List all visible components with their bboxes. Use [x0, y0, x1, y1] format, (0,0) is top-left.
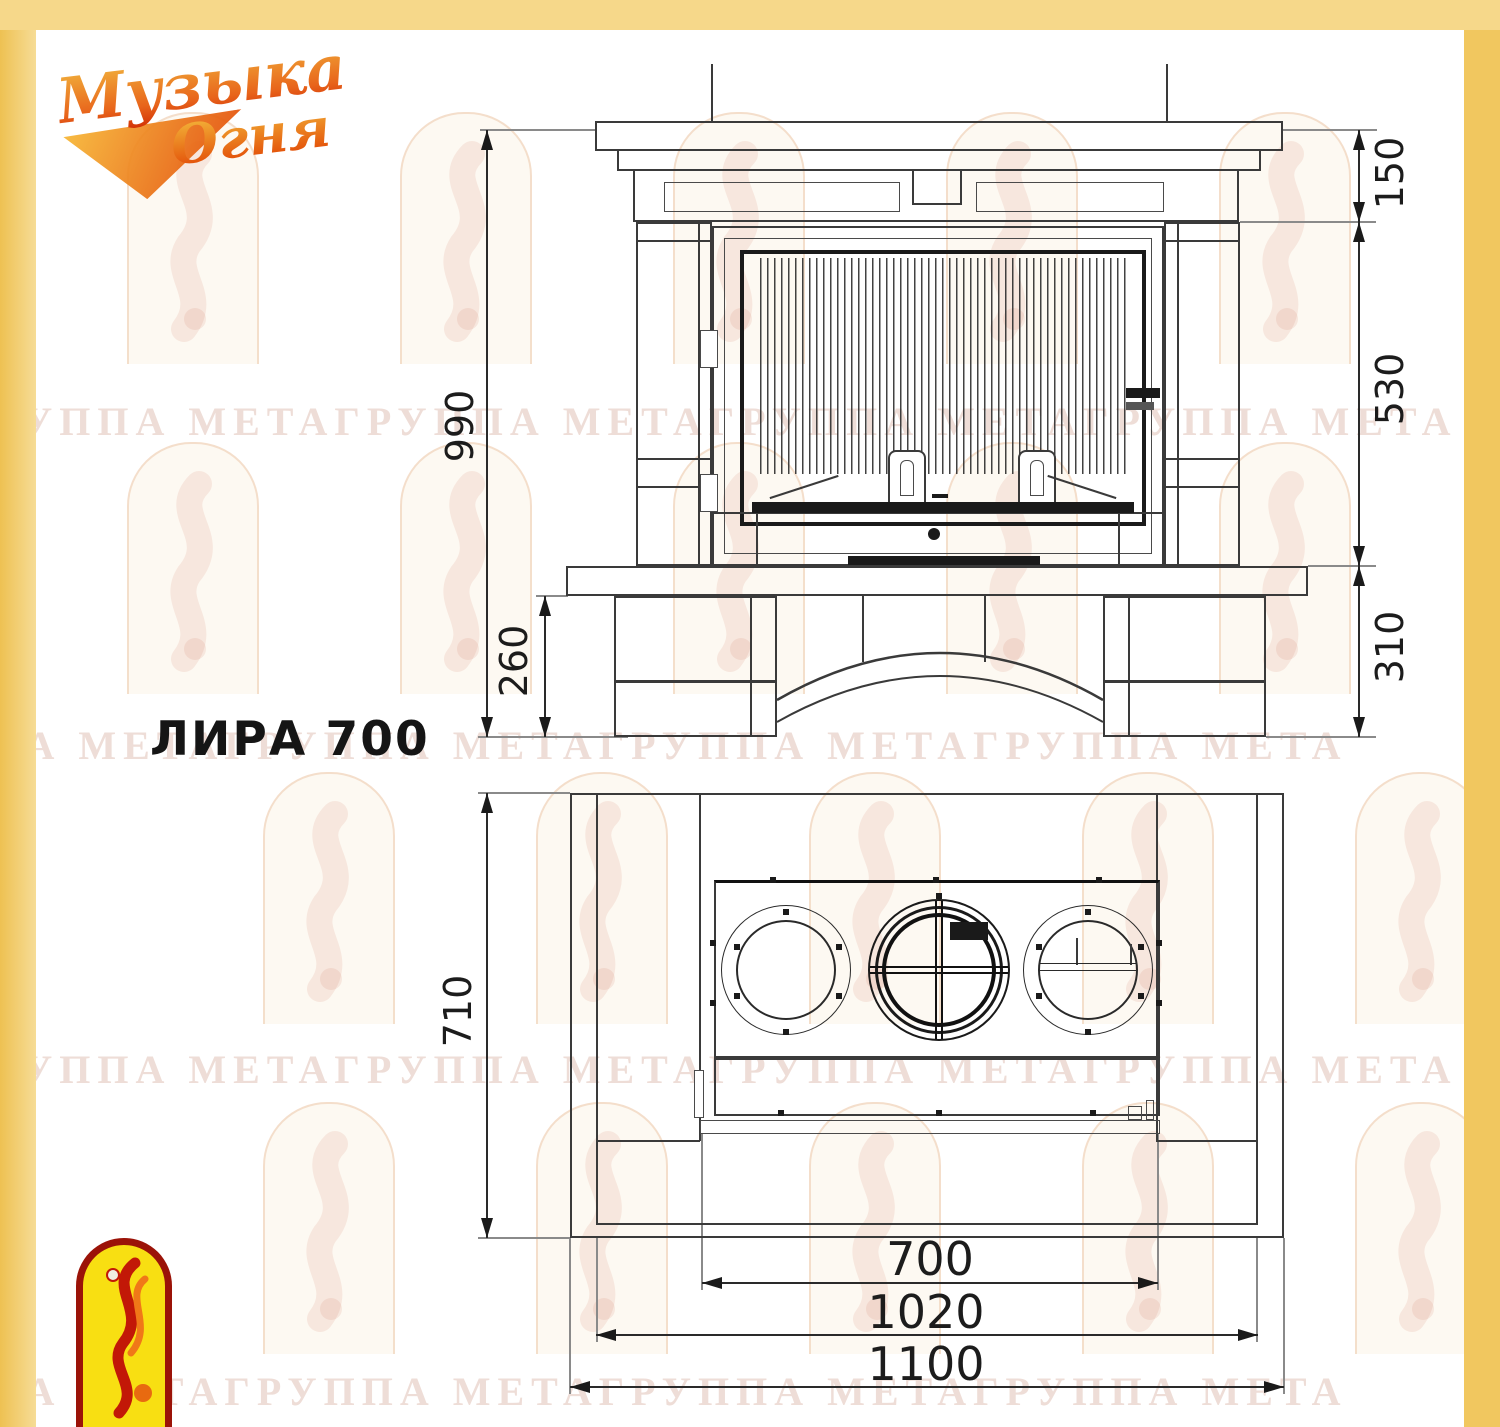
dim-line-990 — [486, 130, 488, 737]
[object — [457, 308, 479, 330]
line — [614, 680, 777, 683]
line — [1164, 486, 1240, 488]
bolt-mark — [1090, 1110, 1096, 1116]
mantel-chamfer — [617, 149, 1261, 171]
dim-label-1100: 1100 — [826, 1339, 1026, 1389]
bolt-mark — [778, 1110, 784, 1116]
watermark-arch-icon — [263, 1102, 395, 1354]
arrow-up — [481, 793, 493, 813]
arrow-down — [1353, 546, 1365, 566]
dim-label-710: 710 — [434, 951, 482, 1071]
[object — [107, 1269, 119, 1281]
floor-dash — [932, 494, 948, 498]
dim-line-710 — [486, 793, 488, 1238]
bolt-mark — [1085, 909, 1091, 915]
dim-label-530: 530 — [1366, 329, 1414, 449]
[object — [134, 1384, 152, 1402]
watermark-arch-icon — [400, 112, 532, 364]
[object — [319, 814, 335, 989]
hinge-bottom — [700, 474, 718, 512]
[object — [184, 308, 206, 330]
watermark-text: ГРУППА МЕТАГРУППА МЕТАГРУППА МЕТАГРУППА … — [0, 1368, 1347, 1415]
hinge-top — [700, 330, 718, 368]
[object — [1412, 1298, 1434, 1320]
ext-line — [478, 736, 628, 738]
bolt-mark — [710, 1000, 716, 1006]
column-left — [636, 222, 712, 566]
[object — [456, 154, 472, 329]
arrow-left — [570, 1381, 590, 1393]
hearth-slab — [566, 566, 1308, 596]
vent-knob — [928, 528, 940, 540]
bolt-mark — [734, 944, 740, 950]
bolt-mark — [1036, 944, 1042, 950]
leg-left — [614, 596, 777, 737]
line — [636, 458, 712, 460]
[object — [320, 968, 342, 990]
bolt-mark — [1138, 944, 1144, 950]
line — [636, 240, 712, 242]
bolt-mark — [1138, 993, 1144, 999]
[object — [456, 484, 472, 659]
line — [1256, 793, 1258, 1225]
[object — [1276, 638, 1298, 660]
dim-label-700: 700 — [830, 1234, 1030, 1284]
line — [596, 793, 598, 1225]
frieze-panel-right — [976, 182, 1164, 212]
andiron-left-slot — [900, 460, 914, 496]
latch-right-a — [1128, 1106, 1142, 1120]
page: ГРУППА МЕТАГРУППА МЕТАГРУППА МЕТАГРУППА … — [0, 0, 1500, 1427]
dim-line-530 — [1358, 222, 1360, 566]
bolt-mark — [836, 944, 842, 950]
bolt-mark — [836, 993, 842, 999]
[object — [1276, 308, 1298, 330]
frieze-keystone — [912, 169, 962, 205]
flue-label-tag — [950, 922, 988, 940]
[object — [319, 1144, 335, 1319]
door-sill — [752, 502, 1134, 513]
column-right — [1164, 222, 1240, 566]
[object — [402, 114, 530, 364]
outlet-right-bar — [1040, 963, 1136, 971]
line — [1128, 596, 1130, 737]
line — [1164, 458, 1240, 460]
dim-line-310 — [1358, 566, 1360, 737]
[object — [265, 774, 393, 1024]
bolt-mark — [783, 909, 789, 915]
ext-line — [1308, 565, 1376, 567]
dim-label-310: 310 — [1366, 587, 1414, 707]
line — [862, 596, 864, 662]
wall-right-front — [1156, 1140, 1258, 1142]
line — [1103, 680, 1266, 683]
[object — [320, 1298, 342, 1320]
line — [756, 512, 758, 564]
firebird-emblem — [76, 1238, 172, 1427]
door-handle — [1126, 388, 1160, 398]
line — [1164, 240, 1240, 242]
[object — [129, 444, 257, 694]
arrow-up — [539, 596, 551, 616]
flue-line-right — [1166, 64, 1168, 122]
line — [1130, 944, 1132, 965]
border-top — [0, 0, 1500, 30]
[object — [1275, 154, 1291, 329]
[object — [1411, 1144, 1427, 1319]
line — [750, 596, 752, 737]
fender-strip — [700, 1120, 1160, 1134]
bolt-mark — [936, 1110, 942, 1116]
door-grill — [760, 258, 1126, 474]
dim-label-1020: 1020 — [826, 1287, 1026, 1337]
bolt-mark — [933, 877, 939, 883]
border-right — [1464, 30, 1500, 1427]
line — [1118, 512, 1120, 564]
ext-line — [1256, 1238, 1258, 1342]
frieze-panel-left — [664, 182, 900, 212]
vent-band — [848, 556, 1040, 565]
ext-line — [480, 129, 596, 131]
dim-line-260 — [544, 596, 546, 737]
latch-right-b — [1146, 1100, 1154, 1120]
flue-line-left — [711, 64, 713, 122]
dim-label-260: 260 — [490, 601, 538, 721]
wall-left-front — [596, 1140, 700, 1142]
[object — [777, 676, 1103, 722]
line — [596, 1223, 1258, 1225]
arrow-down — [539, 717, 551, 737]
arrow-left — [702, 1277, 722, 1289]
firebird-icon — [83, 1245, 165, 1427]
ext-line — [596, 1238, 598, 1342]
flue-damper-horizontal — [870, 966, 1008, 974]
[object — [457, 638, 479, 660]
bolt-mark — [1096, 877, 1102, 883]
arrow-right — [1138, 1277, 1158, 1289]
arrow-up — [1353, 566, 1365, 586]
andiron-right-slot — [1030, 460, 1044, 496]
bolt-mark — [1156, 940, 1162, 946]
firebox-front-band — [714, 1058, 1160, 1116]
[object — [265, 1104, 393, 1354]
border-left — [0, 30, 36, 1427]
bolt-mark — [1036, 993, 1042, 999]
bolt-mark — [770, 877, 776, 883]
dim-label-990: 990 — [436, 366, 484, 486]
arrow-down — [1353, 717, 1365, 737]
[object — [1412, 968, 1434, 990]
line — [1076, 938, 1078, 965]
bolt-mark — [734, 993, 740, 999]
[object — [1411, 814, 1427, 989]
arrow-up — [1353, 130, 1365, 150]
arrow-left — [596, 1329, 616, 1341]
arrow-up — [481, 130, 493, 150]
bolt-mark — [936, 893, 942, 899]
bolt-mark — [1085, 1029, 1091, 1035]
page-title: ЛИРА 700 — [150, 712, 430, 767]
outlet-left-inner — [736, 920, 836, 1020]
[object — [1139, 1298, 1161, 1320]
base-arch — [777, 596, 1103, 737]
latch-left — [694, 1070, 704, 1118]
[object — [118, 1263, 135, 1413]
watermark-arch-icon — [263, 772, 395, 1024]
line — [984, 596, 986, 662]
door-latch — [1126, 402, 1154, 410]
arrow-down — [481, 1218, 493, 1238]
line — [698, 222, 700, 566]
[object — [183, 484, 199, 659]
bolt-mark — [1156, 1000, 1162, 1006]
bolt-mark — [783, 1029, 789, 1035]
brand-logo: Музыка Огня — [43, 30, 361, 235]
watermark-arch-icon — [127, 442, 259, 694]
arrow-up — [1353, 222, 1365, 242]
[object — [184, 638, 206, 660]
dim-label-150: 150 — [1366, 113, 1414, 233]
ext-line — [1283, 1238, 1285, 1394]
mantel-shelf — [595, 121, 1283, 151]
arrow-right — [1264, 1381, 1284, 1393]
ext-line — [569, 1238, 571, 1394]
arrow-right — [1238, 1329, 1258, 1341]
bolt-mark — [710, 940, 716, 946]
line — [1177, 222, 1179, 566]
arrow-down — [1353, 202, 1365, 222]
